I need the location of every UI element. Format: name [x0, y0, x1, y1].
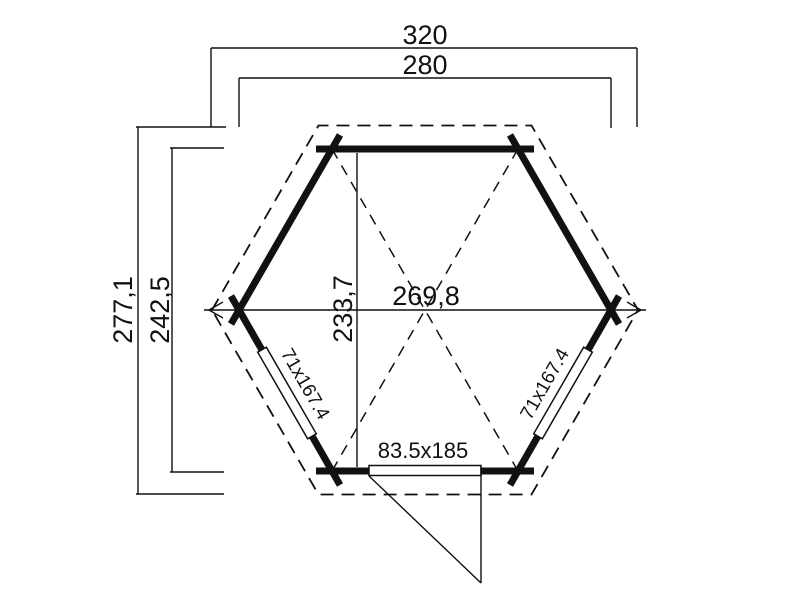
- wall-northeast: [510, 135, 619, 324]
- floor-plan-drawing: 71x167.4 71x167.4 83.5x185 320 280 277,1…: [0, 0, 800, 600]
- door-swing-leaf: [369, 476, 481, 583]
- dim-roof-depth-label: 277,1: [108, 276, 138, 344]
- dim-wall-width: [239, 78, 611, 128]
- dim-wall-width-label: 280: [402, 50, 447, 80]
- dim-wall-depth-label: 242,5: [145, 276, 175, 344]
- dim-roof-width-label: 320: [402, 20, 447, 50]
- door-swing: [369, 467, 481, 583]
- wall-southeast-lower: [510, 436, 538, 485]
- dim-inner-width-label: 269,8: [392, 281, 460, 311]
- wall-southwest-lower: [312, 436, 340, 485]
- dim-inner-depth-label: 233,7: [328, 275, 358, 343]
- door-frame: [369, 466, 481, 476]
- floor-plan-page: 71x167.4 71x167.4 83.5x185 320 280 277,1…: [0, 0, 800, 600]
- wall-northwest: [231, 135, 340, 324]
- door-label: 83.5x185: [378, 438, 469, 463]
